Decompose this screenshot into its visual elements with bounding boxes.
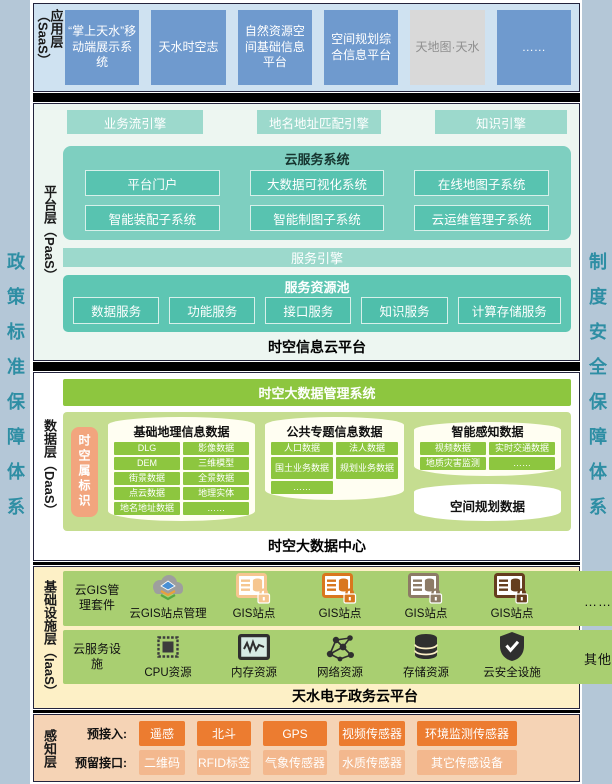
icon-caption: GIS站点 (491, 605, 534, 621)
smart-sensing-column: 智能感知数据 视频数据 实时交通数据 地质灾害监测 …… 空间规划数据 (414, 422, 561, 521)
smart-sensing-data-cylinder: 智能感知数据 视频数据 实时交通数据 地质灾害监测 …… (414, 430, 561, 476)
saas-app-boxes: “掌上天水”移动端展示系统 天水时空志 自然资源空间基础信息平台 空间规划综合信… (63, 9, 573, 86)
left-policy-strip-label: 政策标准保障体系 (2, 252, 28, 532)
service-engine-bar: 服务引擎 (63, 248, 571, 267)
cloud-service-system: 云服务系统 平台门户 大数据可视化系统 在线地图子系统 智能装配子系统 智能制图… (63, 146, 571, 240)
cloud-service-facility-label: 云服务设施 (69, 642, 125, 672)
video-sensor-box: 视频传感器 (339, 721, 405, 746)
iaas-caption: 天水电子政务云平台 (63, 686, 612, 706)
data-item: 国土业务数据 (271, 457, 333, 479)
diagram-body: 应用层（SaaS） “掌上天水”移动端展示系统 天水时空志 自然资源空间基础信息… (33, 0, 580, 782)
architecture-diagram: 政策标准保障体系 制度安全保障体系 应用层（SaaS） “掌上天水”移动端展示系… (0, 0, 612, 784)
compute-storage-service-box: 计算存储服务 (458, 297, 561, 324)
pre-access-label: 预接入: (63, 725, 127, 742)
gis-site-icon (322, 572, 358, 604)
data-item: 地理实体 (183, 487, 249, 500)
other-sensor-box: 其它传感设备 (417, 750, 517, 775)
left-policy-strip: 政策标准保障体系 (0, 0, 30, 784)
gis-icon-row: 云GIS站点管理 (125, 572, 612, 624)
daas-data-container: 时空属标识 基础地理信息数据 DLG 影像数据 DEM 三维模型 街景数据 全景… (63, 412, 571, 531)
gis-site-item: GIS站点 (383, 572, 469, 621)
knowledge-engine-bar: 知识引擎 (435, 110, 567, 134)
data-item: …… (271, 481, 333, 494)
cloud-service-system-title: 云服务系统 (85, 150, 549, 170)
paas-layer-label: 平台层（PaaS） (36, 110, 63, 356)
icon-caption: 存储资源 (403, 664, 449, 680)
cpu-icon (153, 631, 183, 663)
base-geo-data-cylinder: 基础地理信息数据 DLG 影像数据 DEM 三维模型 街景数据 全景数据 点云数… (108, 422, 255, 521)
storage-resource-item: 存储资源 (383, 631, 469, 680)
spatiotemporal-attribute-tag: 时空属标识 (71, 427, 98, 517)
rfid-box: RFID标签 (197, 750, 251, 775)
data-item: 实时交通数据 (489, 442, 555, 455)
function-service-box: 功能服务 (169, 297, 255, 324)
cloud-gis-suite-band: 云GIS管理套件 云GIS站点管理 (63, 571, 612, 626)
spatial-planning-data-label: 空间规划数据 (418, 496, 557, 515)
public-theme-data-cylinder: 公共专题信息数据 人口数据 法人数据 国土业务数据 规划业务数据 …… (265, 422, 404, 521)
qrcode-box: 二维码 (139, 750, 185, 775)
iaas-layer-label: 基础设施层（IaaS） (36, 571, 63, 706)
daas-caption: 时空大数据中心 (63, 536, 571, 556)
public-theme-data-title: 公共专题信息数据 (271, 425, 398, 440)
data-item: 全景数据 (183, 472, 249, 485)
perception-body: 预接入: 遥感 北斗 GPS 视频传感器 环境监测传感器 预留接口: 二维码 R… (63, 721, 571, 775)
spatial-planning-data-cylinder: 空间规划数据 (414, 492, 561, 521)
data-item: 三维模型 (183, 457, 249, 470)
knowledge-service-box: 知识服务 (361, 297, 447, 324)
environment-sensor-box: 环境监测传感器 (417, 721, 517, 746)
smart-assembly-subsystem-box: 智能装配子系统 (85, 205, 220, 231)
shield-icon (498, 631, 526, 663)
saas-app-box-more: …… (497, 10, 571, 85)
gis-site-icon (494, 572, 530, 604)
service-resource-pool-title: 服务资源池 (71, 278, 563, 297)
layer-separator (33, 562, 580, 565)
network-icon (323, 631, 357, 663)
data-service-box: 数据服务 (73, 297, 159, 324)
daas-body: 时空大数据管理系统 时空属标识 基础地理信息数据 DLG 影像数据 DEM 三维… (63, 379, 571, 556)
saas-app-box-planning: 空间规划综合信息平台 (324, 10, 398, 85)
memory-resource-item: 内存资源 (211, 631, 297, 680)
reserved-interface-label: 预留接口: (63, 754, 127, 771)
saas-app-box-natural-resources: 自然资源空间基础信息平台 (238, 10, 312, 85)
data-item: 人口数据 (271, 442, 333, 455)
smart-mapping-subsystem-box: 智能制图子系统 (250, 205, 385, 231)
paas-caption: 时空信息云平台 (63, 337, 571, 357)
right-security-strip-label: 制度安全保障体系 (584, 252, 610, 532)
cloud-gis-site-manager: 云GIS站点管理 (125, 572, 211, 621)
other-facility-label: 其他 (584, 649, 612, 668)
smart-sensing-data-title: 智能感知数据 (420, 425, 555, 440)
gis-site-item: GIS站点 (297, 572, 383, 621)
saas-layer-label: 应用层（SaaS） (36, 9, 63, 86)
layer-separator (33, 362, 580, 371)
iaas-body: 云GIS管理套件 云GIS站点管理 (63, 571, 612, 706)
gis-site-icon (408, 572, 444, 604)
cloud-ops-subsystem-box: 云运维管理子系统 (414, 205, 549, 231)
bigdata-management-system-band: 时空大数据管理系统 (63, 379, 571, 406)
data-item: 点云数据 (114, 487, 180, 500)
data-item: DLG (114, 442, 180, 455)
gis-site-item: GIS站点 (469, 572, 555, 621)
paas-engine-row: 业务流引擎 地名地址匹配引擎 知识引擎 (63, 110, 571, 134)
layer-perception: 感知层 预接入: 遥感 北斗 GPS 视频传感器 环境监测传感器 预留接口: 二… (33, 714, 580, 782)
icon-caption: GIS站点 (233, 605, 276, 621)
weather-sensor-box: 气象传感器 (263, 750, 327, 775)
cloud-security-item: 云安全设施 (469, 631, 555, 680)
pre-access-row: 预接入: 遥感 北斗 GPS 视频传感器 环境监测传感器 (63, 721, 571, 746)
icon-caption: 云安全设施 (483, 664, 541, 680)
memory-icon (238, 631, 270, 663)
data-item: …… (489, 457, 555, 470)
layer-daas: 数据层（DaaS） 时空大数据管理系统 时空属标识 基础地理信息数据 DLG 影… (33, 372, 580, 561)
data-item: 地质灾害监测 (420, 457, 486, 470)
data-item: 街景数据 (114, 472, 180, 485)
ellipsis-label: …… (584, 594, 612, 609)
daas-layer-label: 数据层（DaaS） (36, 379, 63, 556)
icon-caption: 内存资源 (231, 664, 277, 680)
other-facility-item: 其他 (555, 649, 612, 680)
icon-caption: 网络资源 (317, 664, 363, 680)
gis-site-icon (236, 572, 272, 604)
gis-site-item: GIS站点 (211, 572, 297, 621)
data-item: DEM (114, 457, 180, 470)
layer-paas: 平台层（PaaS） 业务流引擎 地名地址匹配引擎 知识引擎 云服务系统 平台门户… (33, 103, 580, 361)
layer-separator (33, 710, 580, 713)
data-item: 规划业务数据 (336, 457, 398, 479)
interface-service-box: 接口服务 (265, 297, 351, 324)
water-sensor-box: 水质传感器 (339, 750, 405, 775)
saas-app-box-mobile: “掌上天水”移动端展示系统 (65, 10, 139, 85)
icon-caption: 云GIS站点管理 (129, 605, 206, 621)
icon-caption: CPU资源 (144, 664, 191, 680)
online-map-subsystem-box: 在线地图子系统 (414, 170, 549, 196)
data-item: …… (183, 502, 249, 515)
icon-caption: GIS站点 (405, 605, 448, 621)
facility-icon-row: CPU资源 内存资源 (125, 631, 612, 683)
service-resource-pool: 服务资源池 数据服务 功能服务 接口服务 知识服务 计算存储服务 (63, 275, 571, 332)
data-item: 地名地址数据 (114, 502, 180, 515)
saas-app-box-tianditu: 天地图·天水 (410, 10, 484, 85)
data-item: 法人数据 (336, 442, 398, 455)
storage-icon (411, 631, 441, 663)
layer-saas: 应用层（SaaS） “掌上天水”移动端展示系统 天水时空志 自然资源空间基础信息… (33, 3, 580, 92)
platform-portal-box: 平台门户 (85, 170, 220, 196)
perception-layer-label: 感知层 (36, 721, 63, 775)
network-resource-item: 网络资源 (297, 631, 383, 680)
bigdata-visualization-box: 大数据可视化系统 (250, 170, 385, 196)
layer-separator (33, 93, 580, 102)
workflow-engine-bar: 业务流引擎 (67, 110, 203, 134)
saas-app-box-chronicle: 天水时空志 (151, 10, 225, 85)
base-geo-data-title: 基础地理信息数据 (114, 425, 249, 440)
cloud-service-facility-band: 云服务设施 CPU资源 (63, 630, 612, 685)
beidou-box: 北斗 (197, 721, 251, 746)
cloud-service-grid: 平台门户 大数据可视化系统 在线地图子系统 智能装配子系统 智能制图子系统 云运… (85, 170, 549, 231)
cloud-gis-icon (148, 572, 188, 604)
more-gis-sites: …… (555, 594, 612, 621)
geocoding-engine-bar: 地名地址匹配引擎 (257, 110, 381, 134)
gps-box: GPS (263, 721, 327, 746)
cloud-gis-suite-label: 云GIS管理套件 (69, 583, 125, 613)
cpu-resource-item: CPU资源 (125, 631, 211, 680)
data-item: 影像数据 (183, 442, 249, 455)
service-resource-grid: 数据服务 功能服务 接口服务 知识服务 计算存储服务 (71, 297, 563, 324)
layer-iaas: 基础设施层（IaaS） 云GIS管理套件 (33, 566, 580, 709)
data-item: 视频数据 (420, 442, 486, 455)
paas-body: 业务流引擎 地名地址匹配引擎 知识引擎 云服务系统 平台门户 大数据可视化系统 … (63, 110, 571, 356)
icon-caption: GIS站点 (319, 605, 362, 621)
reserved-interface-row: 预留接口: 二维码 RFID标签 气象传感器 水质传感器 其它传感设备 (63, 750, 571, 775)
remote-sensing-box: 遥感 (139, 721, 185, 746)
